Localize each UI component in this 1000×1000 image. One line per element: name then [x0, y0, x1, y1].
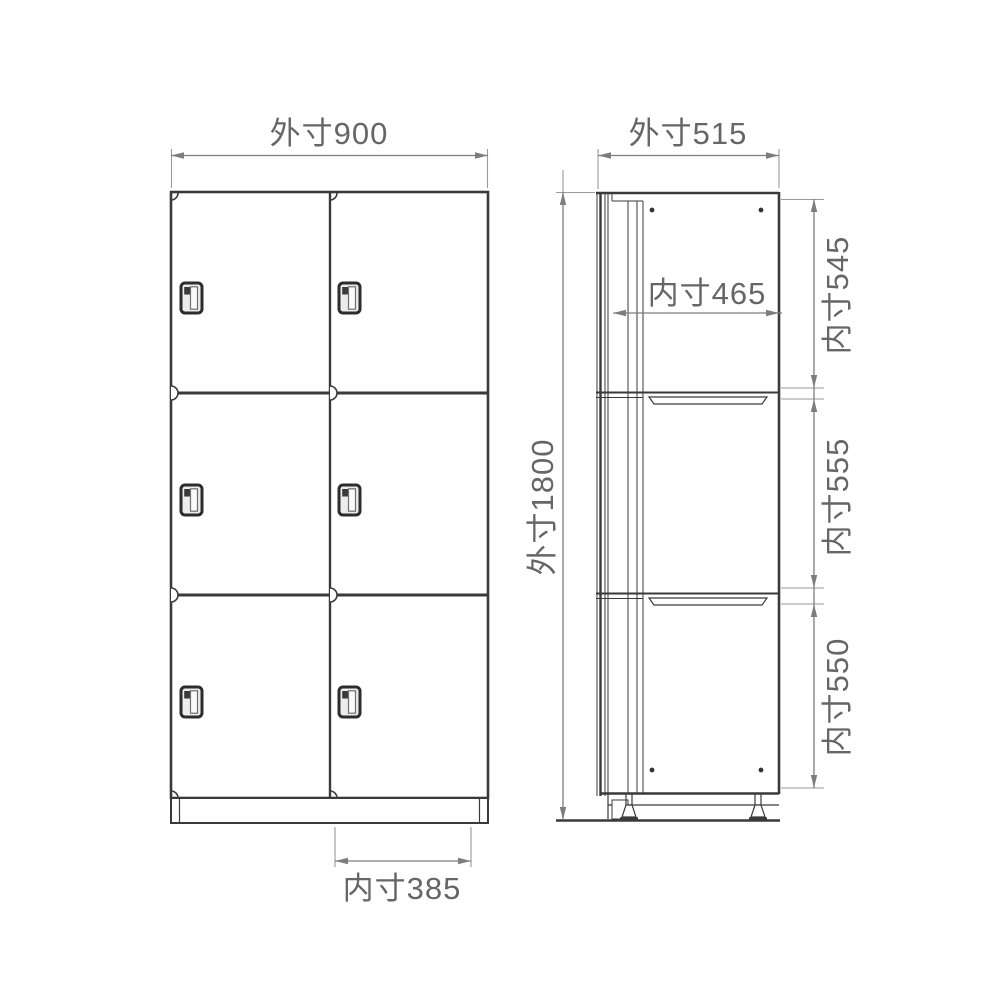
dim-label-side-inner-height-bottom: 内寸550 [820, 597, 856, 797]
door-handle-icon [339, 687, 360, 717]
dim-label-side-outer-height: 外寸1800 [525, 407, 561, 607]
dim-label-side-inner-depth: 内寸465 [607, 276, 807, 312]
side-shelves [596, 393, 779, 606]
door-handle-icon [181, 283, 202, 313]
door-handle-icon [181, 687, 202, 717]
shelf-board [649, 598, 767, 605]
door-handle-icon [339, 485, 360, 515]
door-handle-icon [181, 485, 202, 515]
door-handle-icon [339, 283, 360, 313]
leveler-foot-icon [749, 793, 767, 819]
dim-label-front-outer-width: 外寸900 [229, 116, 429, 152]
dim-label-side-inner-height-top: 内寸545 [820, 195, 856, 395]
dim-label-front-inner-width: 内寸385 [302, 871, 502, 907]
front-view [171, 192, 488, 823]
side-base [556, 793, 780, 821]
dim-label-side-inner-height-middle: 内寸555 [820, 397, 856, 597]
shelf-board [649, 397, 767, 404]
locker-dimension-drawing: 外寸900 外寸515 外寸1800 内寸465 内寸545 内寸555 内寸5… [0, 0, 1000, 1000]
dim-label-side-outer-depth: 外寸515 [588, 116, 788, 152]
front-base-plinth [171, 798, 488, 823]
